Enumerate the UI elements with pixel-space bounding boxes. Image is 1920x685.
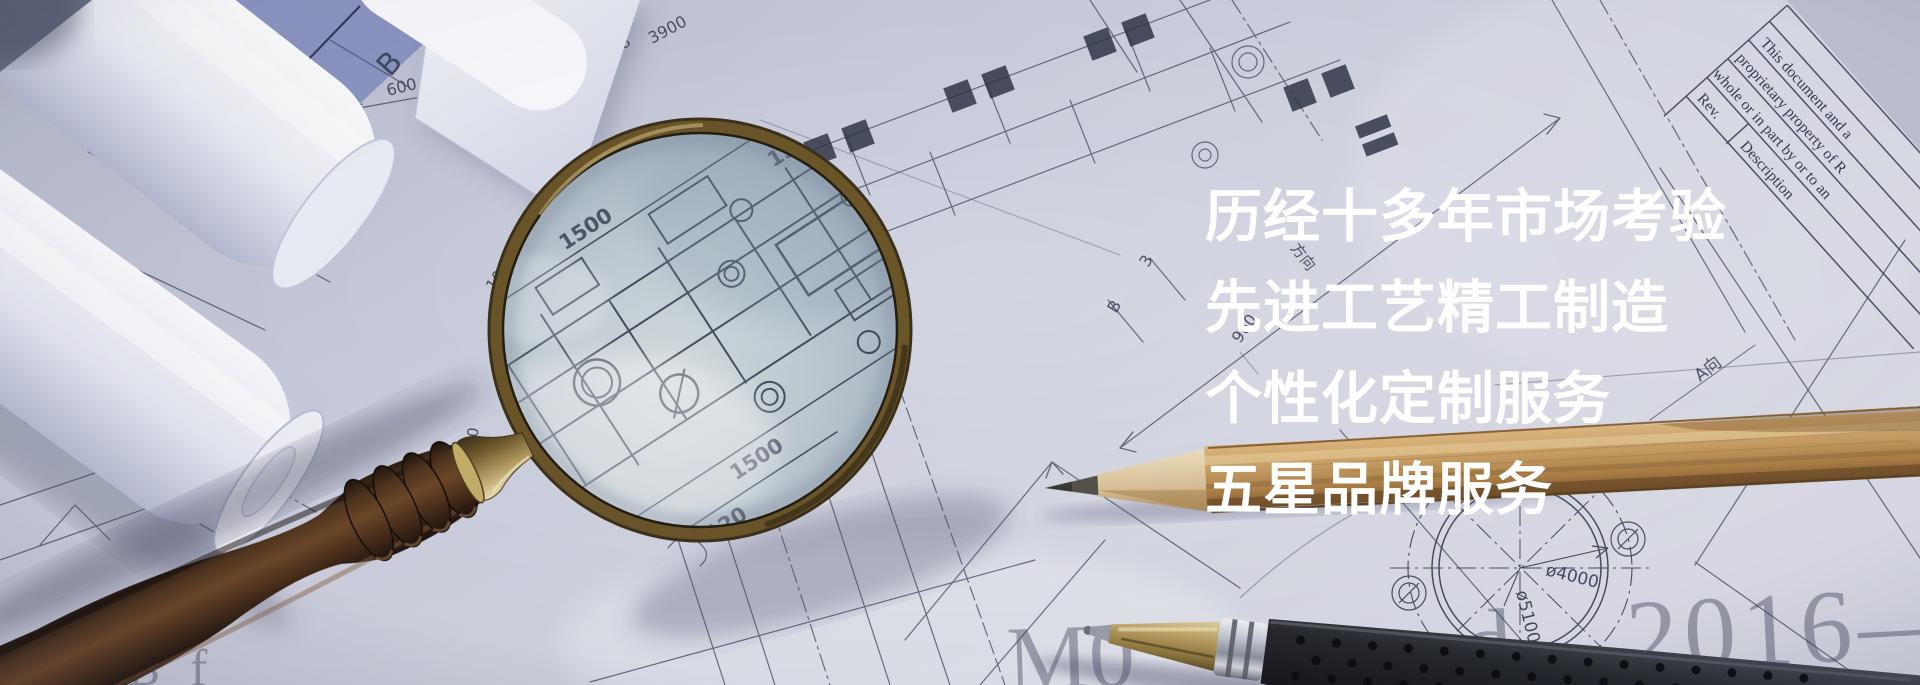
hero-headline-line-3: 个性化定制服务 [1205, 354, 1727, 445]
hero-headline-line-2: 先进工艺精工制造 [1205, 263, 1727, 354]
hero-headline: 历经十多年市场考验 先进工艺精工制造 个性化定制服务 五星品牌服务 [1205, 172, 1727, 536]
hero-banner: B f M0 ed 2016— [0, 0, 1920, 685]
hero-headline-line-4: 五星品牌服务 [1205, 445, 1727, 536]
hero-headline-line-1: 历经十多年市场考验 [1205, 172, 1727, 263]
